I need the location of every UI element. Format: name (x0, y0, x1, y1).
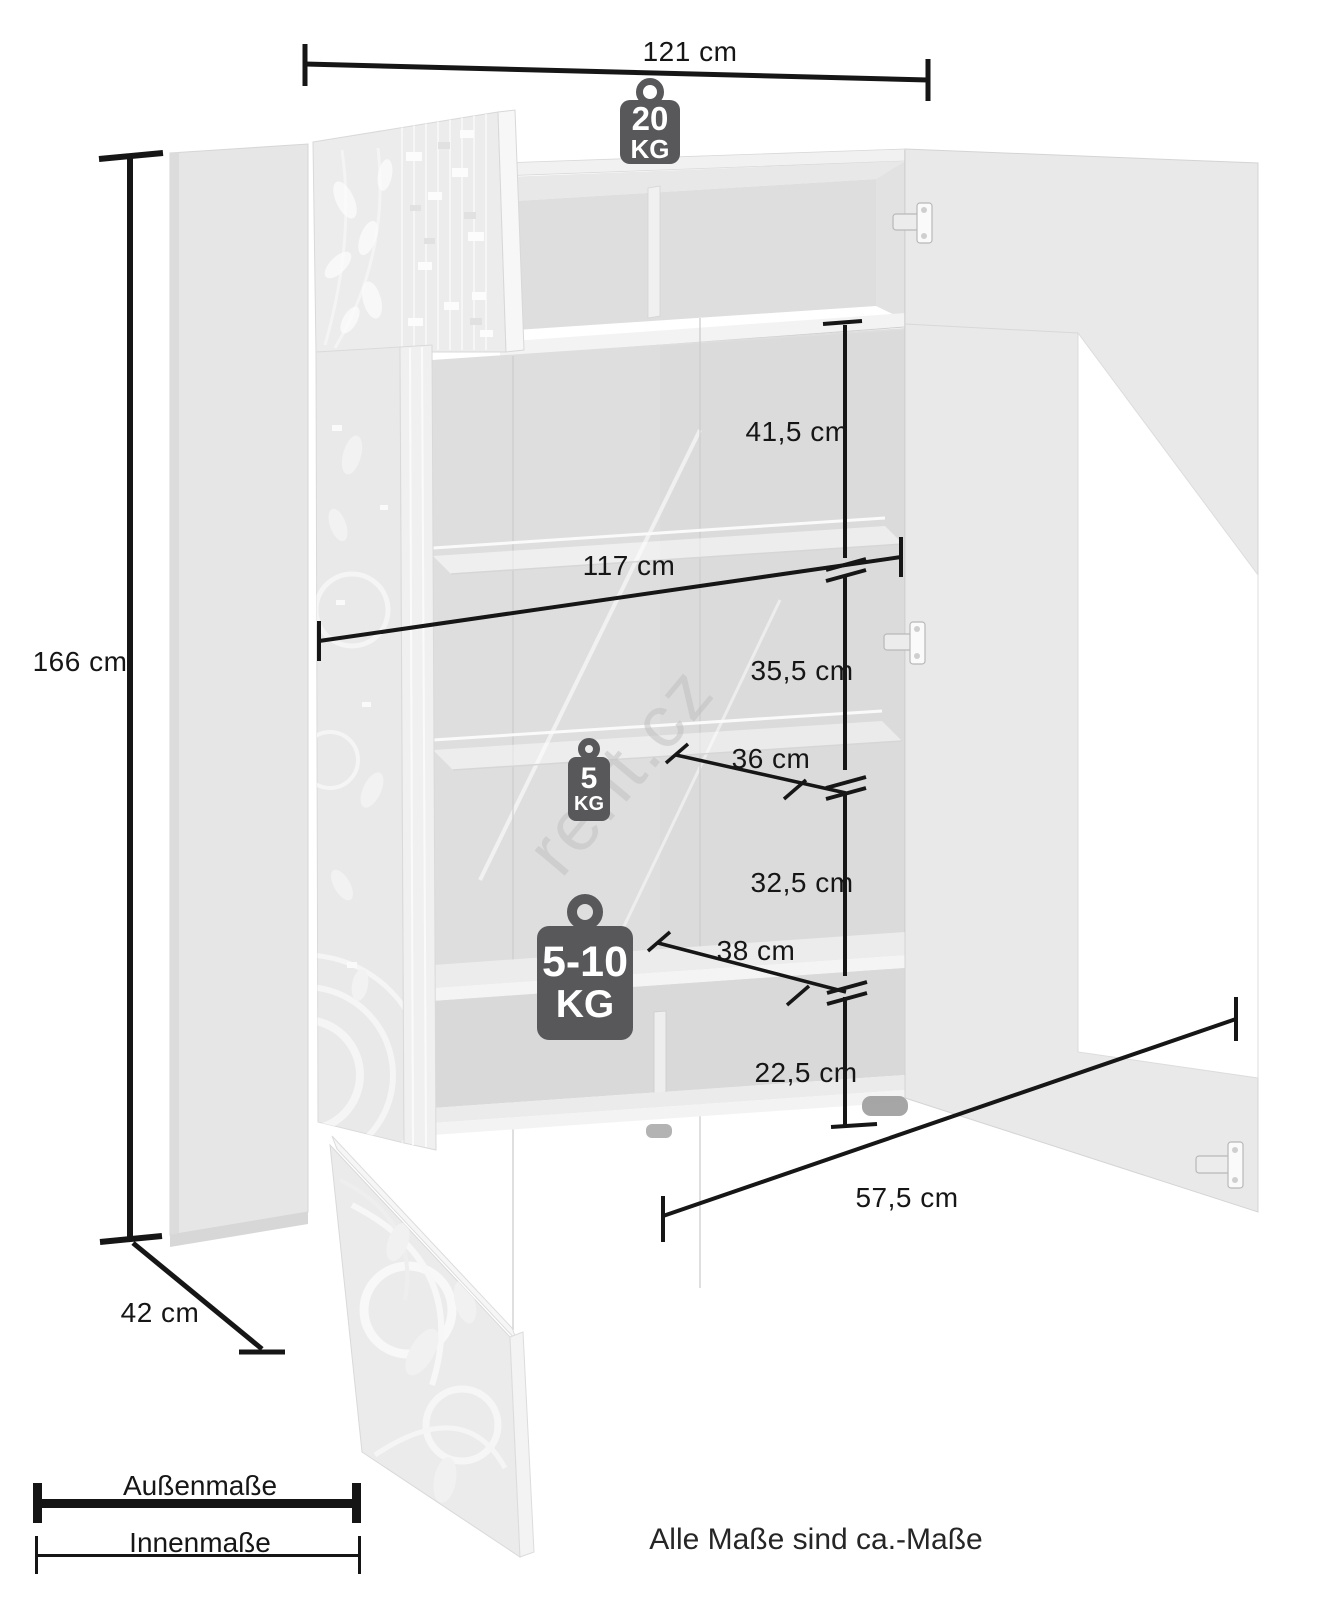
legend-outer-cap-left (33, 1483, 42, 1523)
legend-inner-cap-left (35, 1536, 38, 1574)
dim-label-bottom-compartment-width: 57,5 cm (855, 1182, 958, 1214)
weight-badge-lower-shelf: 5-10 KG (537, 926, 633, 1040)
dim-label-middle-shelf-height: 35,5 cm (750, 655, 853, 687)
dim-label-glass-shelf-depth: 36 cm (732, 743, 811, 775)
weight-badge-ring (567, 894, 603, 930)
weight-unit: KG (556, 985, 615, 1025)
dim-line-outer-width (305, 44, 928, 101)
dim-label-depth: 42 cm (121, 1297, 200, 1329)
weight-value: 5 (581, 764, 598, 795)
dim-label-lower-shelf-depth: 38 cm (717, 935, 796, 967)
legend-outer-cap-right (352, 1483, 361, 1523)
legend-inner-line (37, 1554, 360, 1557)
legend-inner-cap-right (358, 1536, 361, 1574)
dim-label-outer-height: 166 cm (33, 646, 128, 678)
dim-label-inner-width: 117 cm (583, 550, 676, 582)
dimension-diagram: rent.cz (0, 0, 1334, 1600)
weight-badge-glass-shelf: 5 KG (568, 757, 610, 821)
dim-label-top-shelf-height: 41,5 cm (745, 416, 848, 448)
weight-unit: KG (631, 136, 670, 163)
weight-unit: KG (574, 794, 604, 814)
dim-label-lower-shelf-height: 32,5 cm (750, 867, 853, 899)
dim-line-outer-height (99, 153, 163, 1242)
dim-label-bottom-compartment-height: 22,5 cm (754, 1057, 857, 1089)
legend-outer-line (37, 1499, 360, 1508)
footer-note: Alle Maße sind ca.-Maße (649, 1523, 982, 1557)
dimension-lines (0, 0, 1334, 1600)
weight-value: 20 (632, 102, 669, 136)
dim-label-outer-width: 121 cm (643, 36, 738, 68)
weight-value: 5-10 (542, 941, 628, 985)
weight-badge-top: 20 KG (620, 100, 680, 164)
legend-outer-label: Außenmaße (123, 1470, 277, 1502)
